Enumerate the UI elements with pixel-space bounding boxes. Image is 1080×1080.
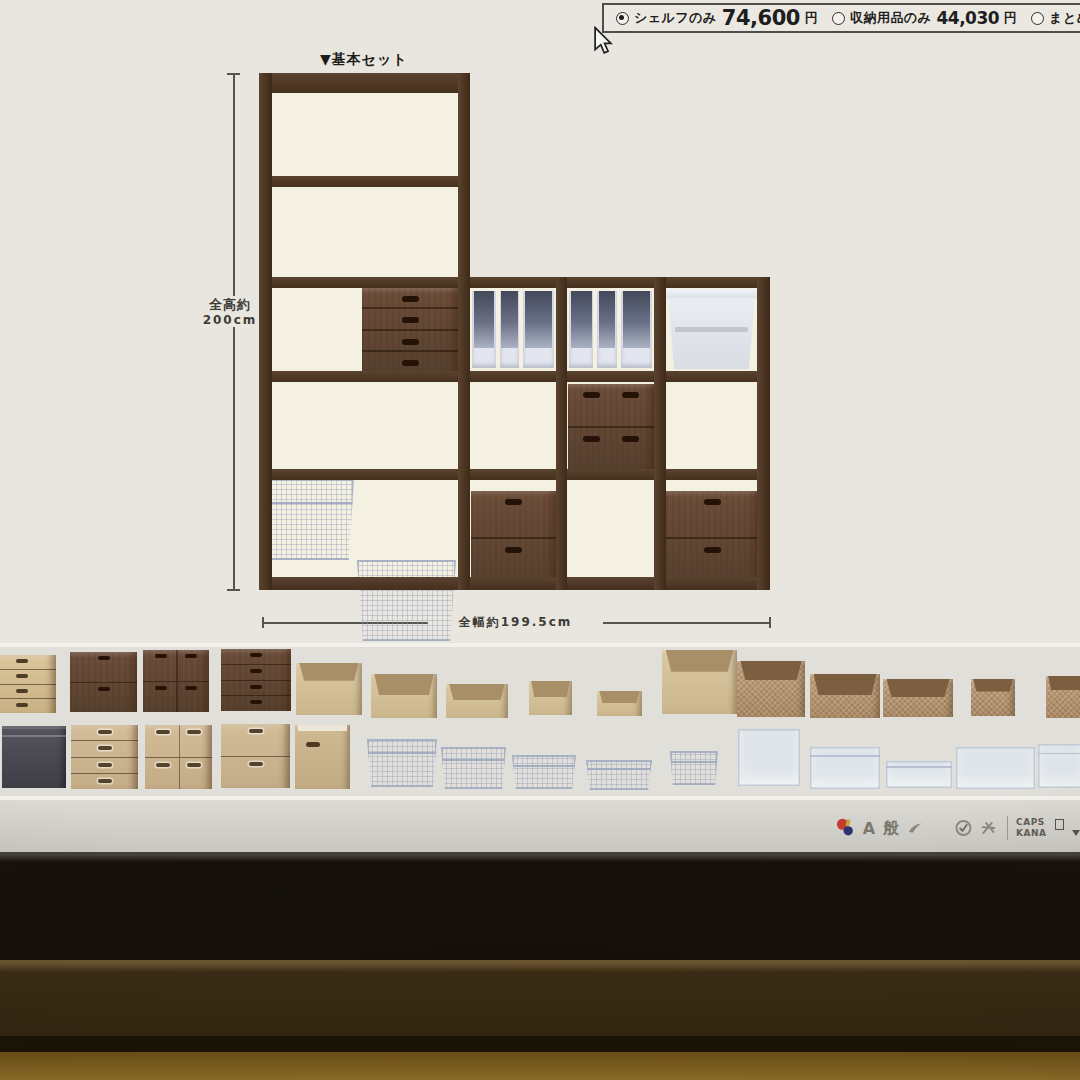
palette-item-frosted-box-tall[interactable] [738, 729, 800, 786]
ime-icon[interactable] [836, 817, 855, 839]
drawer-handle-hole [98, 687, 110, 691]
file-box [500, 291, 519, 368]
height-dimension-value: 200cm [200, 313, 260, 327]
ime-brush-icon[interactable] [907, 821, 924, 835]
mouse-cursor-icon [592, 26, 614, 56]
ime-language-bar: A 般 CAPS KANA [836, 812, 1080, 844]
radio-option-storage-only[interactable]: 収納用品のみ 44,030 円 [832, 8, 1017, 28]
height-dimension-tick-top [227, 73, 240, 75]
radio-icon[interactable] [1031, 12, 1044, 25]
shelf-item-drawer-unit-wide[interactable] [568, 384, 654, 469]
palette-item-cardboard-chest-4drawer-grid[interactable] [145, 725, 212, 789]
shelf-item-drawer-chest-4[interactable] [362, 288, 458, 371]
drawer-handle-hole [16, 674, 28, 678]
palette-item-walnut-chest-4drawer[interactable] [221, 649, 291, 711]
basket-rim [512, 765, 576, 767]
monitor-shadow [0, 1036, 1080, 1052]
width-dimension-tick-left [262, 617, 264, 628]
drawer-handle-hole [98, 656, 110, 660]
ime-chevron-down-icon[interactable] [1072, 830, 1080, 836]
ime-tools-icon[interactable] [980, 819, 997, 837]
box-opening [887, 679, 950, 697]
file-box [597, 291, 617, 368]
drawer-handle-hole [250, 700, 262, 704]
radio-option-shelf-only[interactable]: シェルフのみ 74,600 円 [616, 6, 818, 30]
shelf-item-file-boxes[interactable] [472, 291, 554, 368]
palette-item-wood-chest-4drawer-light[interactable] [0, 655, 56, 713]
drawer-handle-hole [155, 686, 167, 690]
palette-item-frosted-box-low[interactable] [886, 761, 952, 788]
shelf-item-file-boxes[interactable] [569, 291, 652, 368]
box-opening [599, 691, 640, 703]
shelf-item-drawer-chest-2[interactable] [666, 491, 758, 585]
basket-rim [266, 502, 354, 504]
drawer-handle-hole [185, 686, 197, 690]
shelf-post [458, 73, 470, 590]
shelf-item-pp-bin[interactable] [668, 289, 755, 369]
palette-item-rattan-basket-deep[interactable] [737, 661, 805, 717]
price-option-bar: シェルフのみ 74,600 円 収納用品のみ 44,030 円 まとめ [602, 3, 1080, 33]
shelf-post [259, 73, 272, 590]
palette-item-cardboard-chest-2drawer[interactable] [221, 724, 290, 788]
box-lid-line [2, 735, 66, 737]
file-box [523, 291, 554, 368]
ime-kana-indicator[interactable]: KANA [1016, 828, 1046, 839]
option-label: シェルフのみ [634, 9, 717, 27]
shelf-post [556, 277, 567, 590]
height-dimension-tick-bottom [227, 589, 240, 591]
width-dimension-tick-right [769, 617, 771, 628]
basket-rim [441, 759, 506, 761]
box-opening [814, 674, 877, 695]
palette-item-rattan-basket-medium[interactable] [810, 674, 880, 718]
shelf-item-wire-basket[interactable] [266, 479, 354, 560]
drawer-handle-hole [249, 729, 263, 733]
shelf-board [259, 469, 770, 480]
currency-label: 円 [1004, 9, 1017, 27]
box-opening [666, 650, 734, 672]
drawer-handle-hole [187, 763, 201, 767]
drawer-handle-hole [250, 653, 262, 657]
palette-item-wire-basket-large[interactable] [367, 739, 437, 787]
option-label: まとめ [1049, 9, 1080, 27]
lid-line [886, 766, 952, 768]
radio-icon[interactable] [832, 12, 845, 25]
drawer-handle-hole [98, 779, 112, 783]
shelf-item-drawer-chest-2[interactable] [471, 491, 556, 585]
width-dimension-label: 全幅約199.5cm [428, 614, 603, 631]
palette-item-oak-box-deep[interactable] [662, 650, 737, 714]
lid-line [1038, 753, 1080, 755]
configurator-canvas: シェルフのみ 74,600 円 収納用品のみ 44,030 円 まとめ ▼基本セ… [0, 0, 1080, 643]
palette-item-wire-basket-medium[interactable] [441, 747, 506, 789]
shelf-item-wire-basket[interactable] [357, 560, 456, 641]
drawer-handle-hole [249, 762, 263, 766]
shelf-post [757, 277, 770, 590]
shelf-bottom-board [259, 577, 770, 590]
palette-item-cardboard-box-open[interactable] [295, 725, 350, 789]
drawer-handle-hole [155, 654, 167, 658]
drawer-handle-hole [16, 689, 28, 693]
box-opening [298, 725, 348, 731]
palette-item-wood-box-small[interactable] [529, 681, 572, 715]
drawer-handle-hole [98, 763, 112, 767]
shelf-top-beam [259, 73, 470, 93]
photo-of-monitor: シェルフのみ 74,600 円 収納用品のみ 44,030 円 まとめ ▼基本セ… [0, 0, 1080, 1080]
box-handle-hole [306, 742, 320, 748]
box-opening [973, 679, 1013, 692]
ime-caps-indicator[interactable]: CAPS [1016, 817, 1046, 828]
ime-separator [1007, 816, 1008, 840]
height-dimension-label: 全高約 [200, 296, 260, 314]
drawer-handle-hole [187, 730, 201, 734]
palette-item-frosted-box-edge[interactable] [1038, 744, 1080, 788]
pp-bin-body [668, 296, 755, 369]
palette-item-wire-basket-shallow[interactable] [512, 755, 576, 789]
file-box [569, 291, 593, 368]
drawer-handle-hole [185, 654, 197, 658]
file-box [472, 291, 496, 368]
basket-rim [586, 768, 652, 770]
palette-item-walnut-chest-4drawer-grid[interactable] [143, 650, 209, 712]
ime-mode-kanji[interactable]: 般 [883, 818, 899, 839]
palette-item-wood-box-large[interactable] [296, 663, 362, 715]
palette-item-wood-box-shallow[interactable] [446, 684, 508, 718]
drawer-handle-hole [250, 685, 262, 689]
shelf-board [259, 277, 770, 288]
radio-selected-icon[interactable] [616, 12, 629, 25]
box-opening [449, 684, 505, 700]
desk-surface [0, 1052, 1080, 1080]
palette-item-wood-box-medium[interactable] [371, 674, 437, 718]
palette-item-frosted-bin-wide[interactable] [956, 747, 1035, 789]
shelf-board [259, 371, 770, 382]
monitor-bezel: DELL [0, 852, 1080, 960]
shelf-board [259, 176, 470, 187]
option-label: 収納用品のみ [850, 9, 932, 27]
box-opening [299, 663, 358, 681]
pp-bin-ridge [675, 327, 748, 332]
palette-item-walnut-chest-2drawer[interactable] [70, 652, 137, 712]
drawer-handle-hole [16, 659, 28, 663]
palette-item-rattan-basket-edge[interactable] [1046, 676, 1080, 718]
palette-item-wire-basket-small[interactable] [670, 751, 718, 785]
file-box [621, 291, 652, 368]
palette-item-cardboard-chest-4drawer[interactable] [71, 725, 138, 789]
palette-item-wood-box-xsmall[interactable] [597, 691, 642, 716]
palette-item-dark-storage-box[interactable] [2, 726, 66, 788]
lid-line [810, 755, 880, 757]
pp-bin-lip [664, 289, 759, 298]
palette-item-wire-basket-xshallow[interactable] [586, 760, 652, 790]
drawer-handle-hole [98, 730, 112, 734]
drawer-handle-hole [156, 730, 170, 734]
monitor-chin [0, 960, 1080, 1036]
drawer-handle-hole [156, 763, 170, 767]
basket-rim [670, 761, 718, 763]
drawer-handle-hole [16, 703, 28, 707]
drawer-handle-hole [98, 746, 112, 750]
palette-item-frosted-box-lidded[interactable] [810, 747, 880, 789]
drawer-handle-hole [250, 669, 262, 673]
ime-mode-letter[interactable]: A [863, 819, 875, 838]
radio-option-bundle[interactable]: まとめ [1031, 9, 1080, 27]
option-price: 74,600 [722, 6, 800, 30]
shelf-post [654, 277, 666, 590]
basket-rim [367, 752, 437, 754]
ime-pad-icon[interactable] [955, 819, 972, 837]
box-opening [531, 681, 570, 697]
height-dimension-line [233, 74, 235, 590]
palette-item-rattan-basket-shallow[interactable] [883, 679, 953, 717]
palette-item-rattan-basket-small[interactable] [971, 679, 1015, 716]
box-opening [740, 661, 801, 680]
option-price: 44,030 [936, 8, 999, 28]
box-opening [1048, 676, 1080, 690]
box-opening [374, 674, 433, 695]
ime-clipped-icon [1055, 819, 1064, 830]
currency-label: 円 [805, 9, 818, 27]
basic-set-label: ▼基本セット [320, 51, 408, 69]
